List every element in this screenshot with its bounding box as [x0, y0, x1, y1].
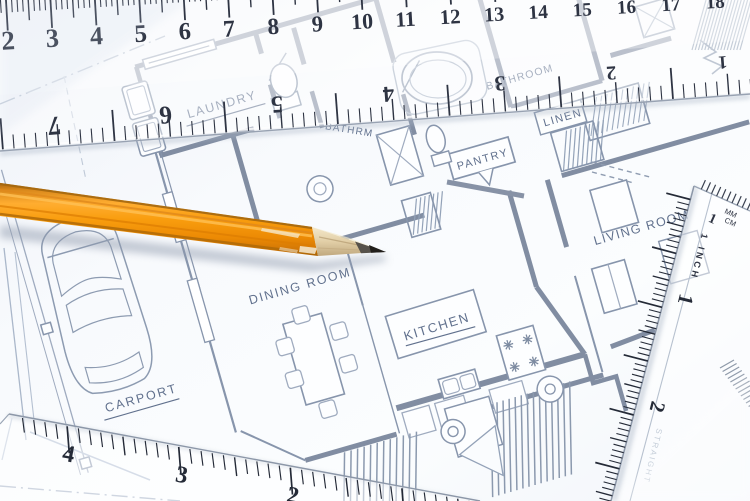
svg-text:17: 17 [661, 0, 682, 16]
svg-text:4: 4 [382, 81, 395, 107]
svg-text:15: 15 [572, 0, 592, 21]
svg-text:6: 6 [178, 18, 192, 46]
svg-text:7: 7 [46, 110, 62, 141]
svg-text:18: 18 [705, 0, 725, 14]
svg-text:9: 9 [311, 11, 324, 37]
svg-text:7: 7 [222, 16, 235, 43]
svg-text:16: 16 [616, 0, 636, 19]
svg-text:5: 5 [270, 90, 284, 118]
svg-text:6: 6 [158, 100, 173, 130]
svg-text:10: 10 [350, 8, 373, 34]
svg-text:8: 8 [267, 14, 280, 41]
svg-text:11: 11 [395, 7, 417, 32]
svg-text:3: 3 [494, 71, 506, 96]
svg-text:1: 1 [717, 51, 728, 73]
svg-text:2: 2 [606, 61, 618, 84]
svg-text:14: 14 [528, 2, 549, 24]
svg-text:13: 13 [483, 3, 504, 26]
svg-text:12: 12 [439, 5, 461, 29]
